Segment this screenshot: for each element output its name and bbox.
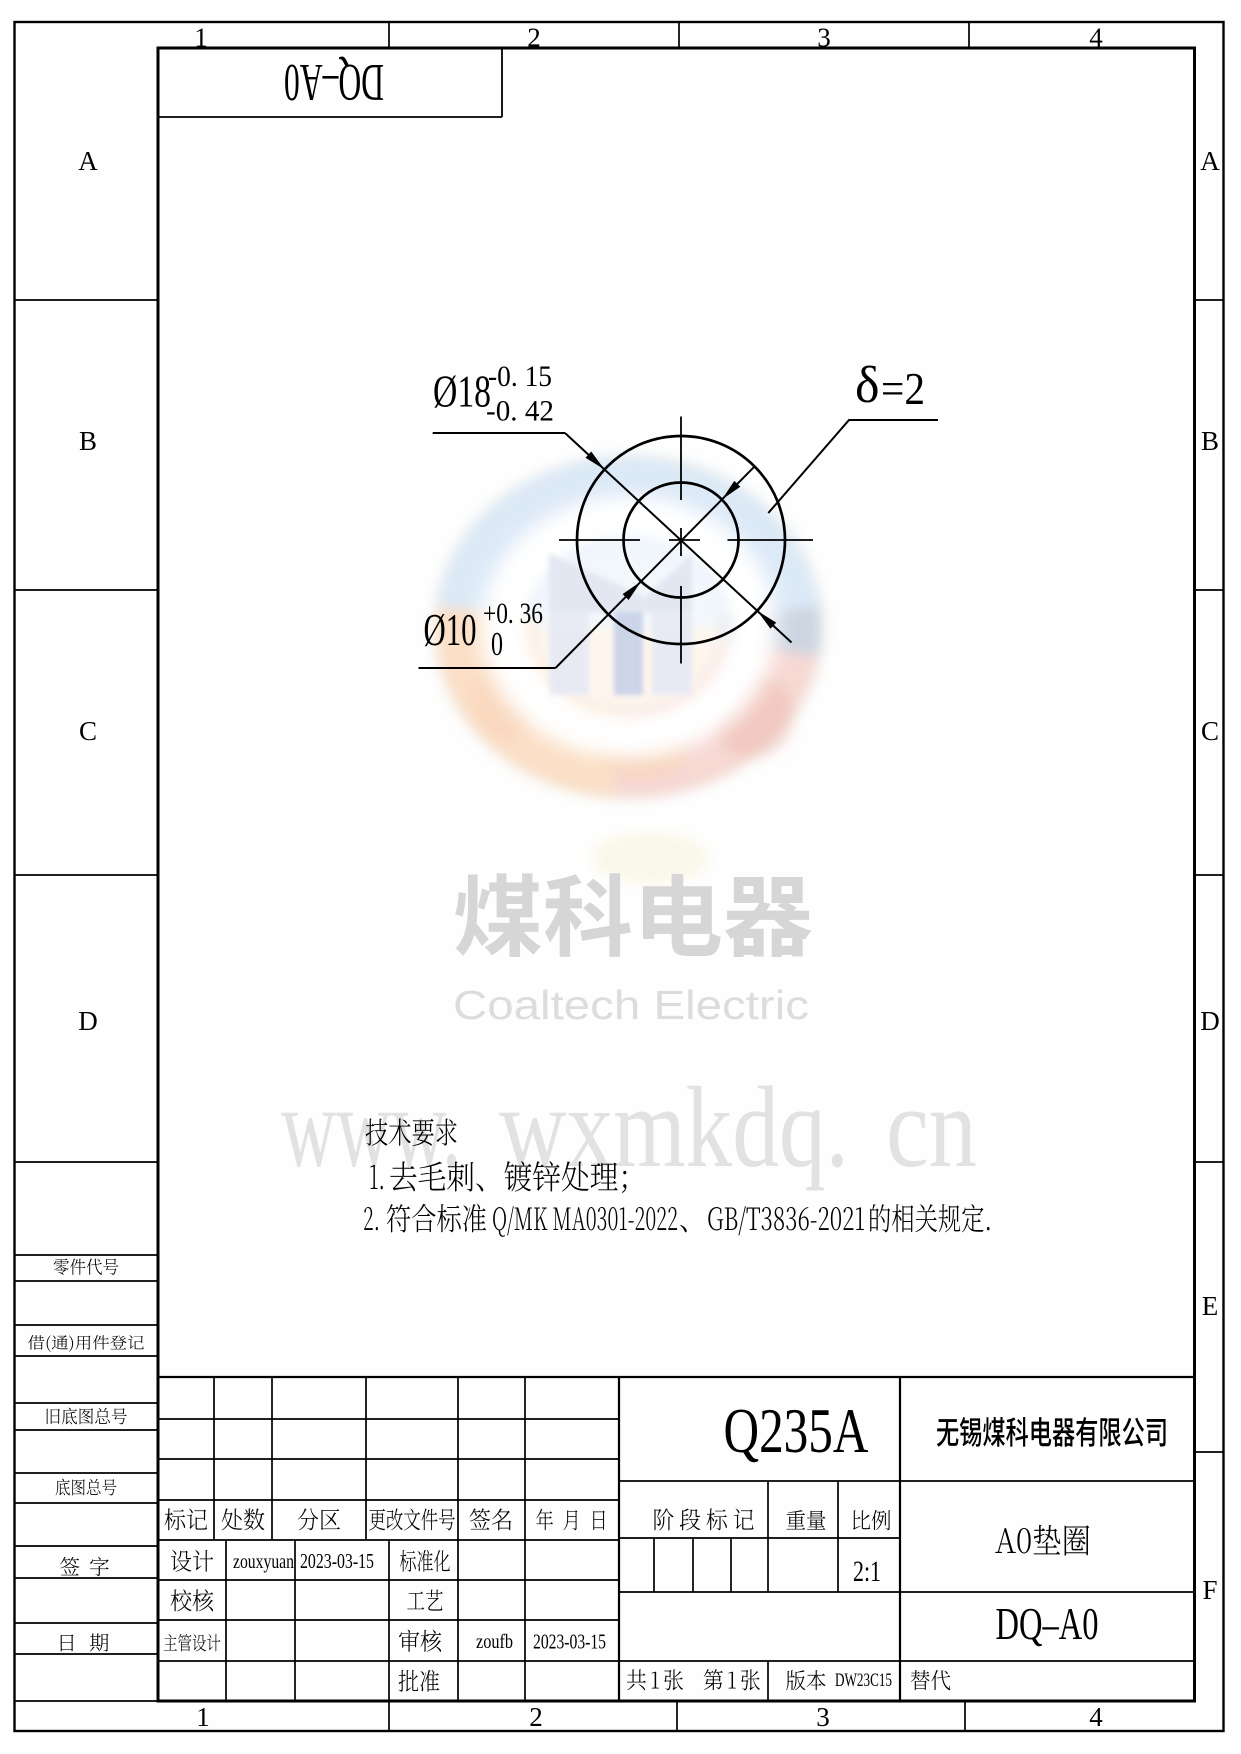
svg-text:4: 4 xyxy=(1089,23,1103,53)
svg-text:E: E xyxy=(1202,1291,1219,1321)
svg-text:-0. 42: -0. 42 xyxy=(486,395,554,428)
svg-text:3: 3 xyxy=(817,23,831,53)
svg-text:δ: δ xyxy=(855,357,880,414)
svg-text:2023-03-15: 2023-03-15 xyxy=(300,1549,374,1573)
svg-text:1: 1 xyxy=(194,23,208,53)
svg-text:3: 3 xyxy=(816,1702,830,1732)
svg-text:D: D xyxy=(1200,1006,1220,1036)
svg-text:DW23C15: DW23C15 xyxy=(835,1670,892,1691)
svg-text:4: 4 xyxy=(1089,1702,1103,1732)
svg-text:cn: cn xyxy=(886,1064,977,1191)
svg-text:2023-03-15: 2023-03-15 xyxy=(533,1630,606,1654)
svg-text:-0. 15: -0. 15 xyxy=(488,360,552,393)
svg-text:F: F xyxy=(1202,1575,1217,1605)
svg-text:D: D xyxy=(78,1006,98,1036)
svg-text:zouxyuan: zouxyuan xyxy=(233,1551,294,1573)
svg-text:2:1: 2:1 xyxy=(853,1555,881,1588)
svg-text:wxmkdq.: wxmkdq. xyxy=(499,1064,849,1191)
svg-text:Q235A: Q235A xyxy=(724,1396,869,1466)
svg-text:0: 0 xyxy=(491,626,503,663)
svg-text:=2: =2 xyxy=(881,363,925,414)
svg-text:DQ–A0: DQ–A0 xyxy=(284,53,384,111)
svg-text:1: 1 xyxy=(196,1702,210,1732)
svg-text:B: B xyxy=(79,426,97,456)
svg-text:A: A xyxy=(1200,146,1220,176)
svg-text:Coaltech Electric: Coaltech Electric xyxy=(453,982,809,1028)
svg-text:Ø10: Ø10 xyxy=(424,604,477,655)
svg-text:C: C xyxy=(1201,716,1219,746)
svg-text:Ø18: Ø18 xyxy=(433,366,491,417)
svg-text:2: 2 xyxy=(527,23,541,53)
svg-text:C: C xyxy=(79,716,97,746)
svg-text:zoufb: zoufb xyxy=(476,1631,513,1653)
svg-text:2: 2 xyxy=(529,1702,543,1732)
svg-text:B: B xyxy=(1201,426,1219,456)
svg-text:www.: www. xyxy=(281,1064,461,1191)
svg-text:A: A xyxy=(78,146,98,176)
svg-text:DQ–A0: DQ–A0 xyxy=(996,1599,1099,1649)
